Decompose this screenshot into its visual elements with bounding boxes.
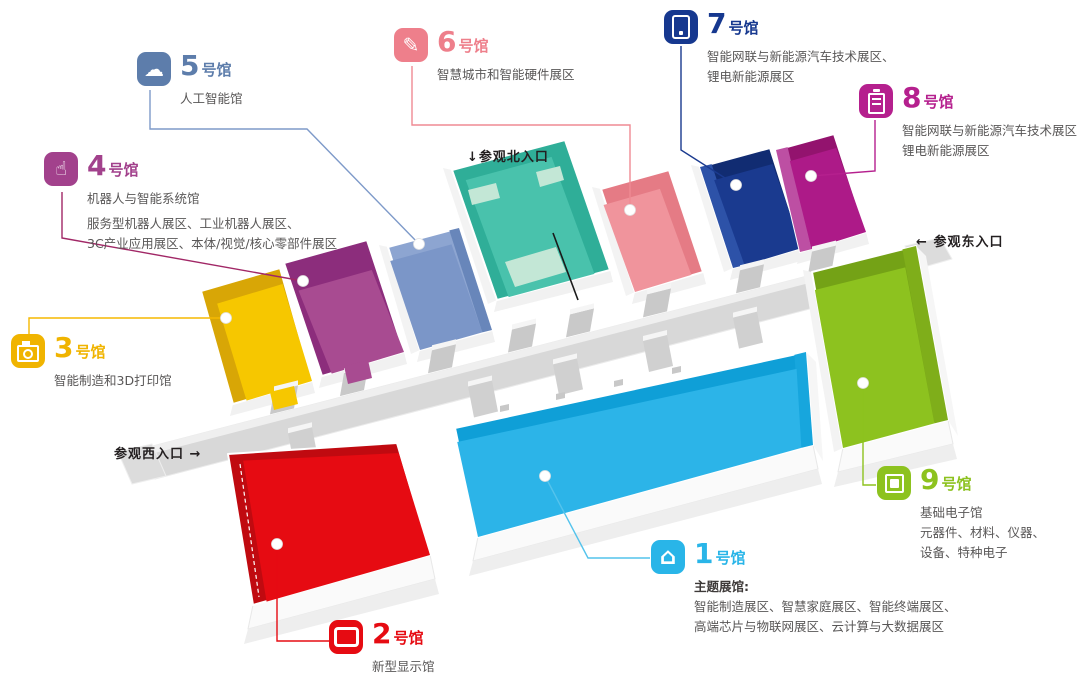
down-arrow-icon: ↓	[467, 150, 479, 165]
hall-5-callout: ☁ 5号馆 人工智能馆	[137, 52, 243, 109]
hall-6-title: 6号馆	[437, 28, 575, 56]
hand-icon: ☝	[44, 152, 78, 186]
west-entrance-label: 参观西入口 →	[114, 443, 201, 462]
h1-marker-dot	[540, 471, 551, 482]
right-arrow-icon: →	[190, 447, 202, 462]
hall-5-name: 人工智能馆	[180, 89, 243, 109]
printer-icon	[11, 334, 45, 368]
hall-4-desc: 3C产业应用展区、本体/视觉/核心零部件展区	[87, 234, 337, 254]
hall-4-desc: 服务型机器人展区、工业机器人展区、	[87, 214, 337, 234]
h4-marker-dot	[298, 276, 309, 287]
chip-icon	[877, 466, 911, 500]
hall-2-name: 新型显示馆	[372, 657, 435, 677]
hall-1-desc: 智能制造展区、智慧家庭展区、智能终端展区、	[694, 597, 957, 617]
hall-1-desc: 高端芯片与物联网展区、云计算与大数据展区	[694, 617, 957, 637]
h5-marker-dot	[414, 239, 425, 250]
hall-5-title: 5号馆	[180, 52, 243, 80]
hall-9-callout: 9号馆 基础电子馆 元器件、材料、仪器、 设备、特种电子	[877, 466, 1045, 563]
hall-3-title: 3号馆	[54, 334, 172, 362]
h7-marker-dot	[731, 180, 742, 191]
h8-marker-dot	[806, 171, 817, 182]
left-arrow-icon: ←	[916, 235, 928, 250]
h6-marker-dot	[625, 205, 636, 216]
hall-7-title: 7号馆	[707, 10, 895, 38]
hall-8-desc: 锂电新能源展区	[902, 141, 1077, 161]
device-icon	[664, 10, 698, 44]
home-icon: ⌂	[651, 540, 685, 574]
hall-6-callout: ✎ 6号馆 智慧城市和智能硬件展区	[394, 28, 575, 85]
hall-7-desc: 智能网联与新能源汽车技术展区、	[707, 47, 895, 67]
hall-2-title: 2号馆	[372, 620, 435, 648]
h1-column-base	[672, 366, 681, 374]
hall-4-callout: ☝ 4号馆 机器人与智能系统馆 服务型机器人展区、工业机器人展区、 3C产业应用…	[44, 152, 337, 254]
display-icon	[329, 620, 363, 654]
hall-1-name: 主题展馆:	[694, 577, 957, 597]
hall-9-desc: 设备、特种电子	[920, 543, 1045, 563]
brain-icon: ☁	[137, 52, 171, 86]
h2-marker-dot	[272, 539, 283, 550]
hall-6-name: 智慧城市和智能硬件展区	[437, 65, 575, 85]
h1-column-base	[556, 392, 565, 400]
hall-4-title: 4号馆	[87, 152, 337, 180]
hall-9-name: 基础电子馆	[920, 503, 1045, 523]
hall-8-desc: 智能网联与新能源汽车技术展区	[902, 121, 1077, 141]
hall-9-title: 9号馆	[920, 466, 1045, 494]
h1-column-base	[500, 404, 509, 412]
hall-8-callout: 8号馆 智能网联与新能源汽车技术展区 锂电新能源展区	[859, 84, 1077, 161]
hall-2-callout: 2号馆 新型显示馆	[329, 620, 435, 677]
exhibition-map: ☁ 5号馆 人工智能馆 ✎ 6号馆 智慧城市和智能硬件展区 7号馆 智能网联与新…	[0, 0, 1080, 696]
battery-icon	[859, 84, 893, 118]
h1-column-base	[614, 379, 623, 387]
h9-marker-dot	[858, 378, 869, 389]
hall-8-title: 8号馆	[902, 84, 1077, 112]
hall-7-callout: 7号馆 智能网联与新能源汽车技术展区、 锂电新能源展区	[664, 10, 895, 87]
hall-3-callout: 3号馆 智能制造和3D打印馆	[11, 334, 172, 391]
north-entrance-label: ↓参观北入口	[467, 146, 549, 165]
east-entrance-label: ← 参观东入口	[916, 231, 1003, 250]
hall-3-name: 智能制造和3D打印馆	[54, 371, 172, 391]
h3-marker-dot	[221, 313, 232, 324]
hall-4-name: 机器人与智能系统馆	[87, 189, 337, 209]
pen-icon: ✎	[394, 28, 428, 62]
hall-9-desc: 元器件、材料、仪器、	[920, 523, 1045, 543]
